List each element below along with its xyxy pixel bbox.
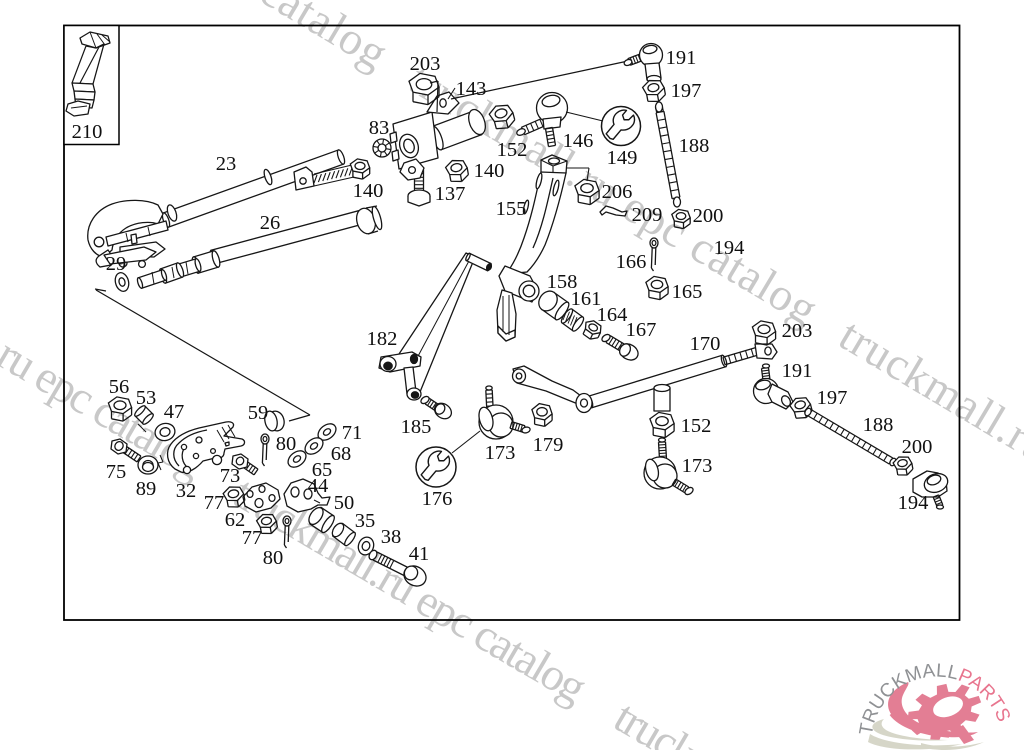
svg-text:53: 53	[136, 387, 157, 409]
svg-text:194: 194	[898, 492, 929, 514]
svg-text:32: 32	[176, 480, 197, 502]
svg-text:210: 210	[72, 121, 103, 143]
svg-text:176: 176	[422, 488, 453, 510]
svg-text:77: 77	[204, 492, 225, 514]
svg-text:140: 140	[474, 160, 505, 182]
svg-text:191: 191	[666, 47, 697, 69]
svg-text:44: 44	[308, 475, 329, 497]
svg-text:80: 80	[263, 547, 284, 569]
svg-text:146: 146	[563, 130, 594, 152]
svg-text:152: 152	[681, 415, 712, 437]
svg-text:56: 56	[109, 376, 130, 398]
svg-text:89: 89	[136, 478, 157, 500]
svg-text:200: 200	[693, 205, 724, 227]
svg-text:182: 182	[367, 328, 398, 350]
svg-text:167: 167	[626, 319, 657, 341]
svg-text:173: 173	[682, 455, 713, 477]
svg-text:185: 185	[401, 416, 432, 438]
svg-text:188: 188	[863, 414, 894, 436]
svg-text:173: 173	[485, 442, 516, 464]
svg-text:29: 29	[106, 253, 127, 275]
svg-text:83: 83	[369, 117, 390, 139]
svg-text:191: 191	[782, 360, 813, 382]
svg-text:68: 68	[331, 443, 352, 465]
svg-text:164: 164	[597, 304, 628, 326]
svg-text:38: 38	[381, 526, 402, 548]
svg-text:197: 197	[671, 80, 702, 102]
svg-text:73: 73	[220, 465, 241, 487]
svg-text:50: 50	[334, 492, 355, 514]
svg-text:166: 166	[616, 251, 647, 273]
svg-text:59: 59	[248, 402, 269, 424]
svg-text:200: 200	[902, 436, 933, 458]
svg-text:23: 23	[216, 153, 237, 175]
svg-text:47: 47	[164, 401, 185, 423]
svg-text:75: 75	[106, 461, 127, 483]
svg-text:206: 206	[602, 181, 633, 203]
svg-text:188: 188	[679, 135, 710, 157]
svg-text:155: 155	[496, 198, 527, 220]
svg-text:41: 41	[409, 543, 430, 565]
svg-text:203: 203	[782, 320, 813, 342]
svg-text:77: 77	[242, 527, 263, 549]
svg-text:80: 80	[276, 433, 297, 455]
svg-text:71: 71	[342, 422, 363, 444]
svg-text:170: 170	[690, 333, 721, 355]
svg-text:209: 209	[632, 204, 663, 226]
svg-text:137: 137	[435, 183, 466, 205]
svg-text:152: 152	[497, 139, 528, 161]
svg-text:26: 26	[260, 212, 281, 234]
svg-text:165: 165	[672, 281, 703, 303]
svg-text:179: 179	[533, 434, 564, 456]
svg-text:203: 203	[410, 53, 441, 75]
svg-text:35: 35	[355, 510, 376, 532]
svg-text:197: 197	[817, 387, 848, 409]
svg-text:194: 194	[714, 237, 745, 259]
svg-text:149: 149	[607, 147, 638, 169]
svg-text:140: 140	[353, 180, 384, 202]
